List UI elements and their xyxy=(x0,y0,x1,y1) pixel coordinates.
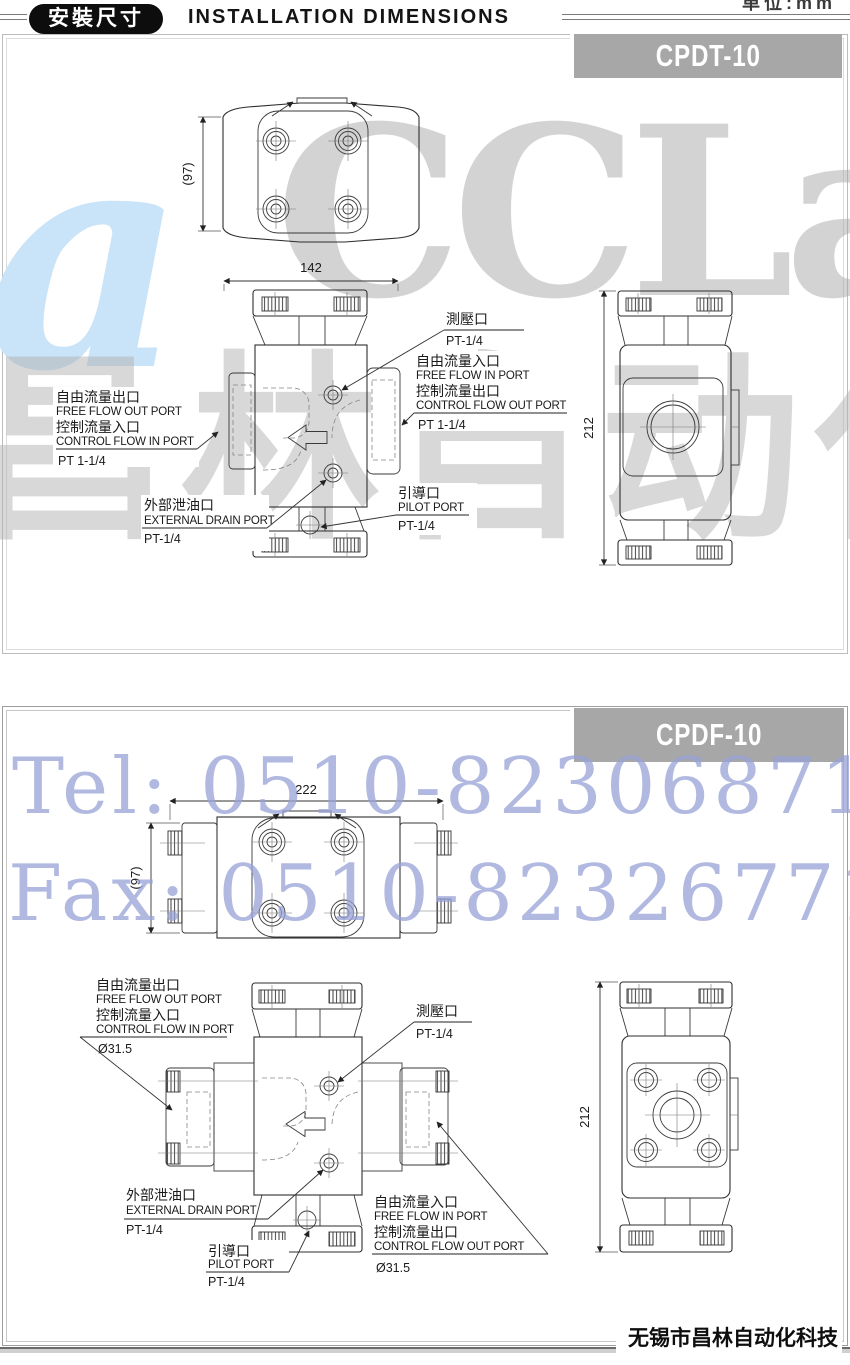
model-banner-cpdf10: CPDF-10 xyxy=(570,708,844,762)
header-badge: 安裝尺寸 xyxy=(29,4,163,34)
model-label-cpdf10: CPDF-10 xyxy=(656,717,762,753)
model-label-cpdt10: CPDT-10 xyxy=(656,38,761,74)
unit-note-clipped: 单位:mm xyxy=(742,0,836,15)
header-rule-left xyxy=(0,14,27,20)
footer-company: 无锡市昌林自动化科技 xyxy=(616,1322,842,1355)
section-frame-cpdf10 xyxy=(2,706,848,1346)
catalog-page: 安裝尺寸 INSTALLATION DIMENSIONS 单位:mm CPDT-… xyxy=(0,0,850,1365)
section-frame-cpdt10 xyxy=(2,34,848,654)
page-title: INSTALLATION DIMENSIONS xyxy=(188,6,510,29)
model-banner-cpdt10: CPDT-10 xyxy=(570,34,842,78)
